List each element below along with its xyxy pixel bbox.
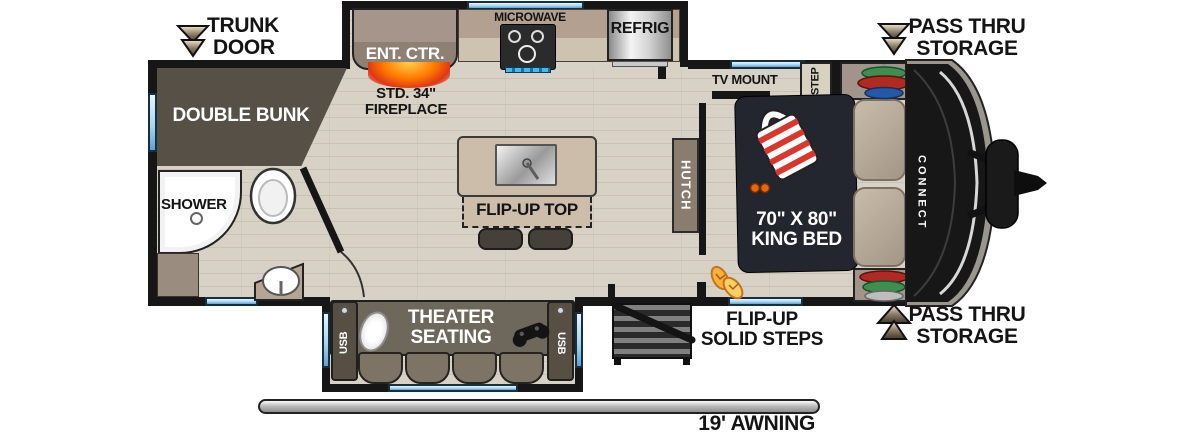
double-bunk-label: DOUBLE BUNK [162,103,320,129]
bed-pillow-icon [853,99,906,181]
pass-thru-storage-top-label: PASS THRU STORAGE [908,16,1026,60]
ent-ctr-label: ENT. CTR. [352,40,458,68]
window-theater-left [322,312,330,368]
refrigerator-label: REFRIG [607,21,673,38]
island-sink-icon [495,144,557,186]
awning-label: 19' AWNING [655,413,815,435]
step-label: STEP [800,62,832,100]
burner-icon [531,30,544,43]
tv-half-wall [699,103,706,255]
wall-top-left [148,60,350,69]
window-bedroom-bottom [728,297,803,306]
seat-cushion [452,352,497,384]
refrigerator-step [612,61,668,67]
connect-brand-label: CONNECT [913,145,929,240]
shower-label: SHOWER [161,197,227,213]
fireplace-label: STD. 34" FIREPLACE [350,86,462,117]
shower-drain-icon [190,212,203,225]
tv-mount-label: TV MOUNT [712,73,777,87]
seat-cushion [499,352,544,384]
window-rear [148,93,157,152]
window-top-right [730,60,805,69]
seat-cushion [358,352,403,384]
pass-thru-bottom-arrows-icon [878,305,910,339]
wall-kitchen-slide-right [680,1,688,67]
wall-stub-bedroom [697,282,706,299]
stove-knobs-icon [505,67,551,73]
wall-kitchen-slide-left [342,1,350,67]
microwave-label: MICROWAVE [480,11,580,23]
step-foot [683,359,690,365]
hitch-icon [968,140,1047,228]
burner-icon [518,45,536,63]
wall-stub-kitchen [658,67,666,79]
usb-left-label: USB [331,313,358,373]
pass-thru-storage-bottom-label: PASS THRU STORAGE [908,304,1026,348]
window-theater-bottom [388,384,518,392]
usb-right-label: USB [547,313,574,373]
step-foot [614,359,621,365]
bed-pillow-icon [853,187,906,267]
window-theater-right [575,312,583,368]
wardrobe-bottom [853,268,913,302]
pass-thru-top-arrows-icon [879,24,909,54]
trunk-door-label: TRUNK DOOR [207,15,279,59]
hutch-label: HUTCH [672,138,699,233]
window-bathroom [205,297,258,306]
flip-up-solid-steps-label: FLIP-UP SOLID STEPS [695,310,829,350]
trunk-door-arrows-icon [178,26,208,56]
bath-cabinet [157,253,199,297]
wardrobe-top [840,62,913,100]
flip-up-steps [612,303,692,359]
king-bed-label: 70" X 80" KING BED [737,210,856,250]
burner-icon [508,30,521,43]
stool [528,228,573,250]
rv-floorplan-diagram: TRUNK DOOR PASS THRU STORAGE PASS THRU S… [0,0,1200,439]
theater-seating-label: THEATER SEATING [385,308,517,348]
propane-tank-icon [986,140,1018,228]
seat-cushion [405,352,450,384]
wall-stub-door [608,284,615,299]
stool [478,228,523,250]
coupler-icon [1014,170,1047,196]
flip-up-top-label: FLIP-UP TOP [462,201,592,219]
